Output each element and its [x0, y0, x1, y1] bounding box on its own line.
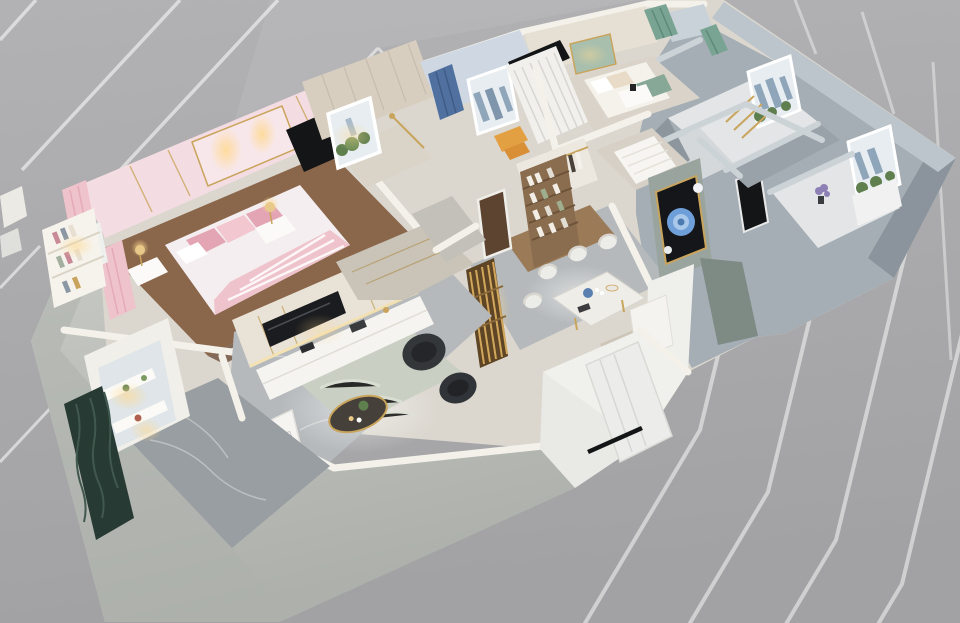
nightstand-clock [630, 84, 636, 91]
screenshot-root [0, 0, 960, 623]
blue-rose-artwork [656, 176, 706, 264]
art-glow-right [248, 114, 276, 154]
shelf-plant [141, 375, 147, 381]
blue-teapot [583, 288, 593, 298]
floorplan-render [0, 0, 960, 623]
art-glow-left [210, 128, 242, 172]
wood-door [478, 190, 511, 258]
dish [606, 285, 618, 291]
